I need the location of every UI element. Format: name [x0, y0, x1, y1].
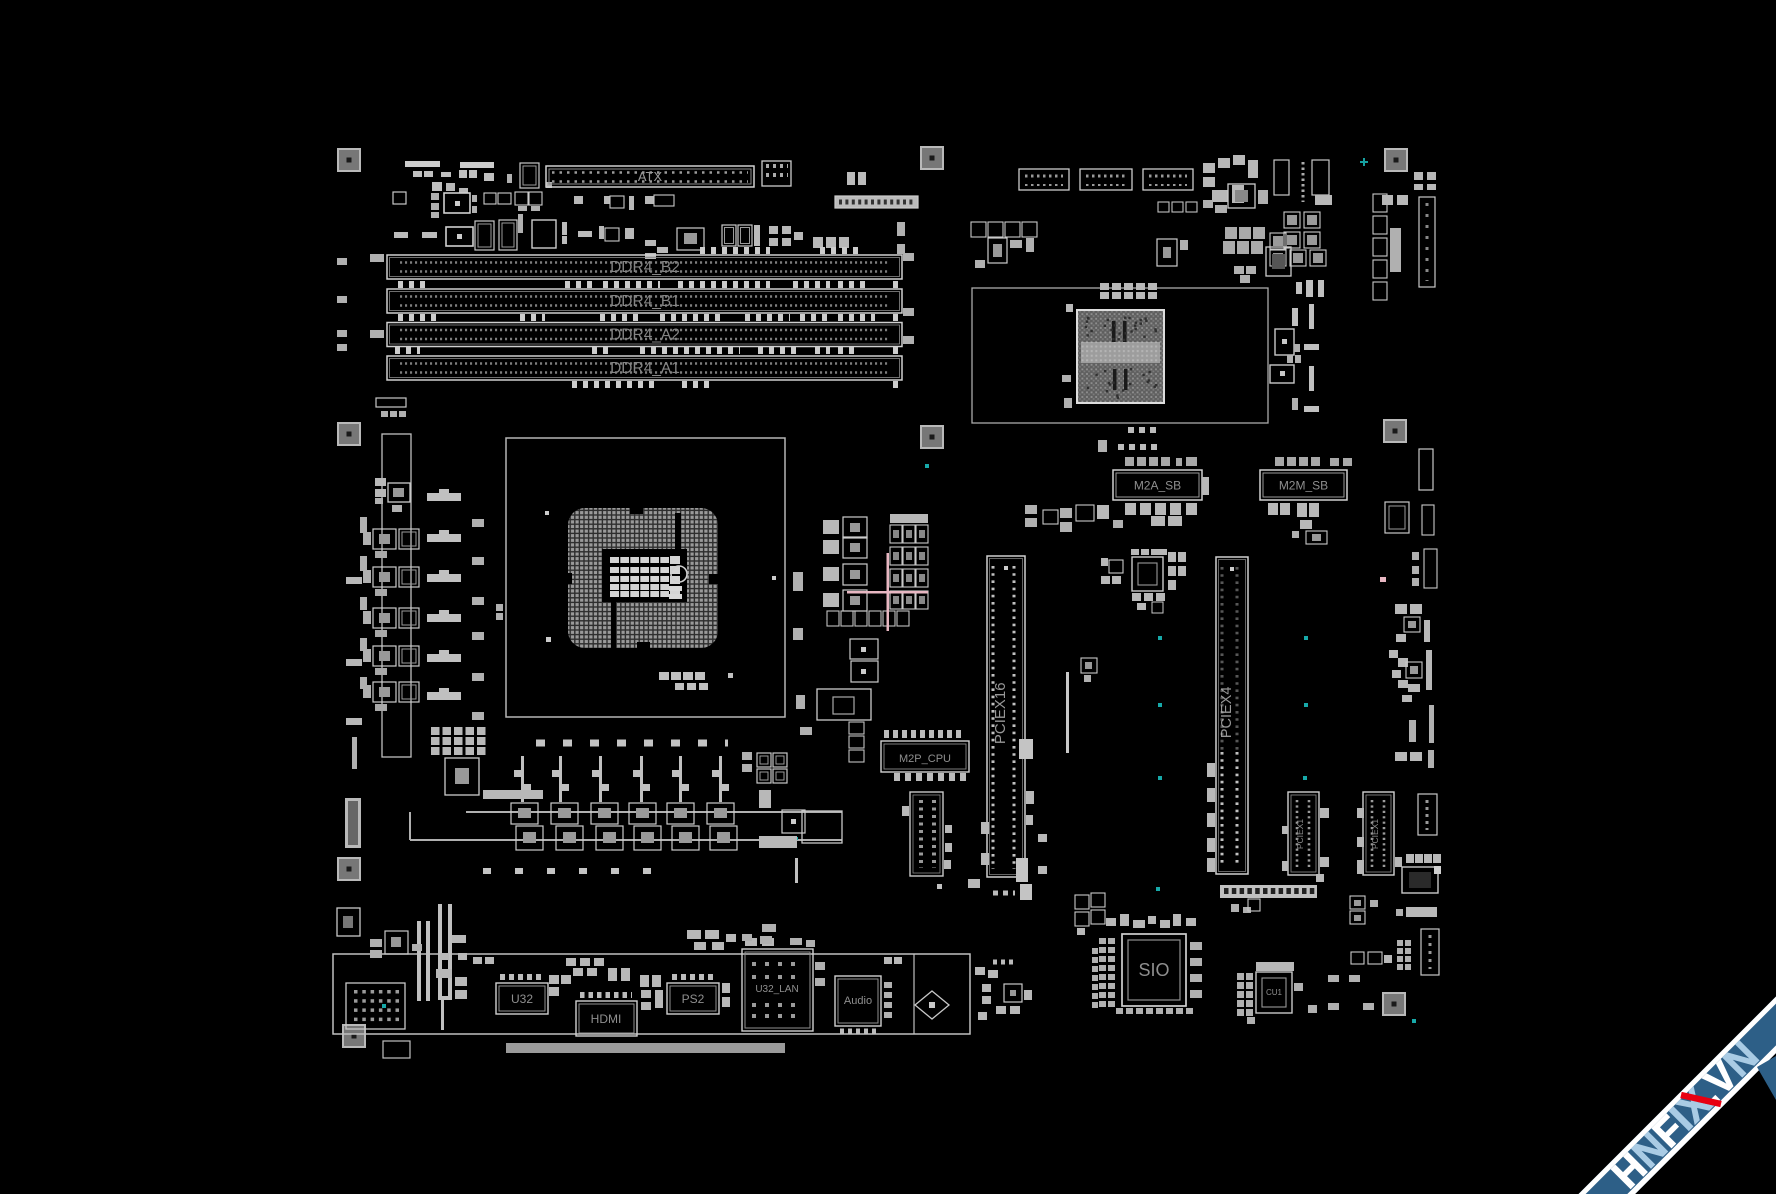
svg-text:PCIEX1: PCIEX1 [1295, 819, 1305, 850]
svg-text:M2M_SB: M2M_SB [1279, 479, 1328, 493]
svg-text:U32: U32 [511, 992, 533, 1006]
svg-text:PS2: PS2 [682, 992, 705, 1006]
svg-text:PCIEX1: PCIEX1 [1370, 819, 1380, 850]
svg-text:M2P_CPU: M2P_CPU [899, 753, 951, 765]
svg-text:HDMI: HDMI [591, 1012, 622, 1026]
svg-text:DDR4_A1: DDR4_A1 [610, 360, 680, 377]
svg-text:DDR4_A2: DDR4_A2 [610, 327, 680, 344]
svg-text:Audio: Audio [844, 995, 872, 1007]
svg-text:PCIEX16: PCIEX16 [992, 682, 1009, 744]
svg-text:M2A_SB: M2A_SB [1134, 479, 1181, 493]
svg-text:DDR4_B1: DDR4_B1 [610, 293, 680, 310]
svg-text:ATX: ATX [638, 169, 663, 184]
svg-text:U32_LAN: U32_LAN [755, 984, 798, 995]
svg-text:SIO: SIO [1138, 960, 1169, 980]
svg-text:DDR4_B2: DDR4_B2 [610, 259, 680, 276]
svg-text:CU1: CU1 [1266, 988, 1283, 997]
